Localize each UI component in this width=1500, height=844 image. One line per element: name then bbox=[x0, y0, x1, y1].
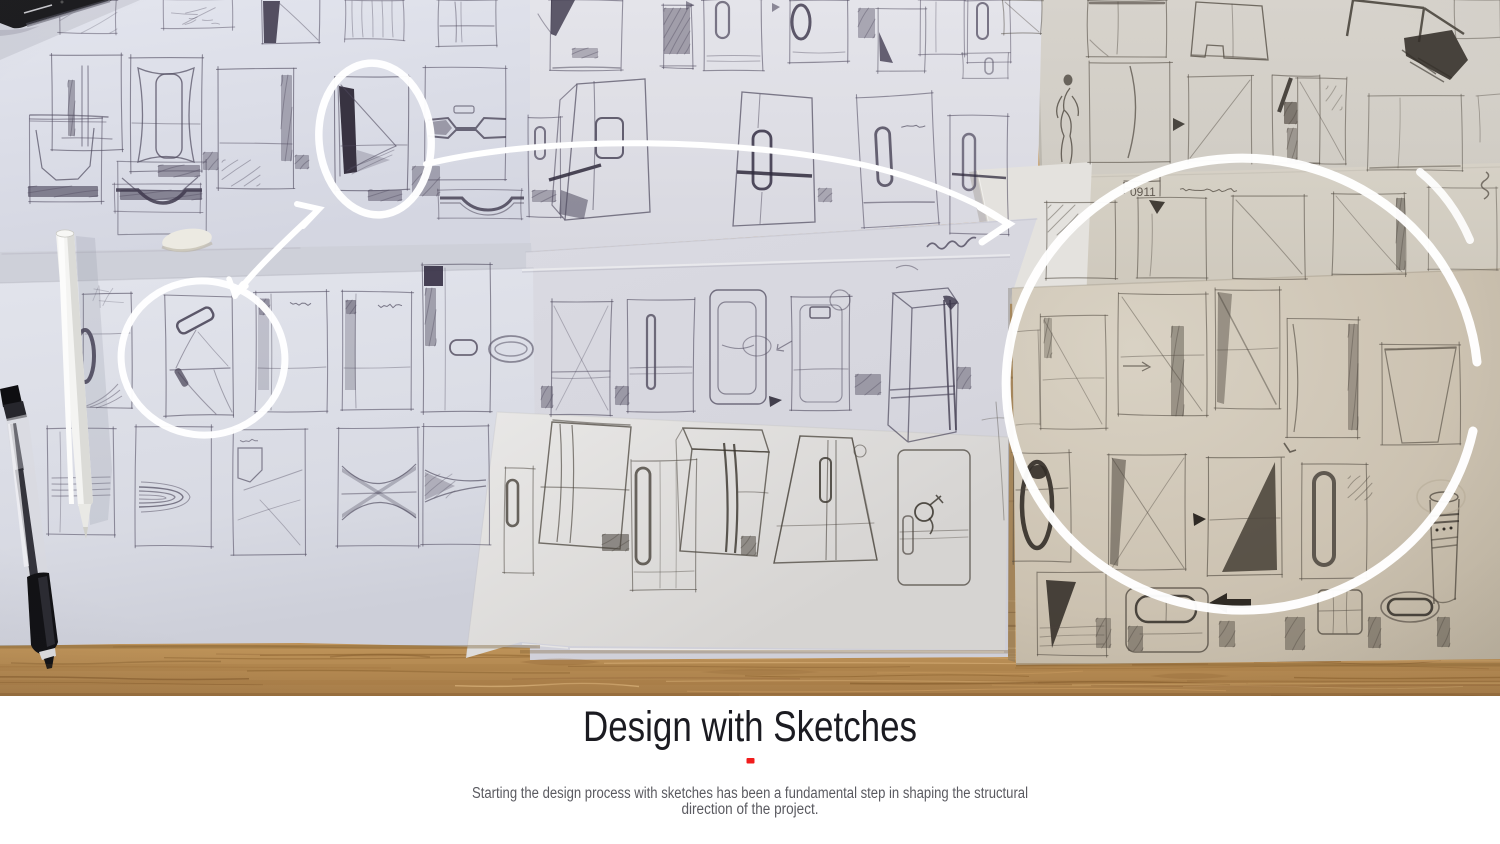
svg-text:Starting the design process wi: Starting the design process with sketche… bbox=[472, 785, 1028, 802]
svg-text:Design with Sketches: Design with Sketches bbox=[583, 703, 917, 751]
svg-text:direction of the project.: direction of the project. bbox=[682, 801, 819, 818]
